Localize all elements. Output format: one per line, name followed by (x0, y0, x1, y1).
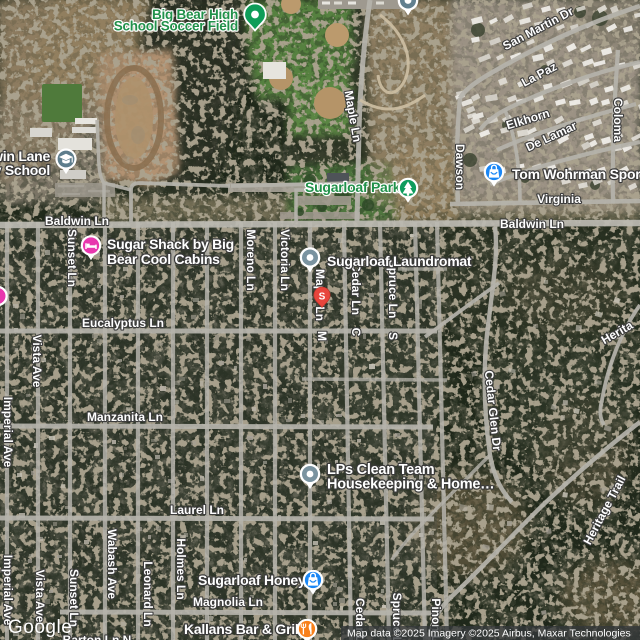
svg-text:Imperial Ave: Imperial Ave (1, 555, 15, 626)
svg-text:Sunset Ln: Sunset Ln (65, 229, 79, 287)
svg-text:Sugar Shack by Big: Sugar Shack by Big (107, 236, 234, 252)
svg-text:Leonard Ln: Leonard Ln (141, 561, 155, 626)
svg-text:Google: Google (8, 617, 72, 638)
svg-text:Imperial Ave: Imperial Ave (1, 397, 15, 468)
svg-text:Housekeeping & Home…: Housekeeping & Home… (327, 477, 494, 493)
svg-text:Holmes Ln: Holmes Ln (174, 538, 188, 599)
svg-text:S: S (319, 292, 326, 303)
svg-text:Baldwin Ln: Baldwin Ln (45, 214, 109, 228)
svg-text:Sugarloaf Park: Sugarloaf Park (305, 179, 401, 195)
svg-text:Laurel Ln: Laurel Ln (170, 503, 224, 517)
svg-text:Coloma: Coloma (611, 98, 625, 142)
svg-text:Sugarloaf Honey: Sugarloaf Honey (198, 572, 306, 588)
svg-text:Manzanita Ln: Manzanita Ln (87, 410, 163, 424)
svg-text:Vista Ave: Vista Ave (33, 570, 47, 623)
svg-text:S: S (386, 332, 400, 340)
svg-text:Kallans Bar & Grill: Kallans Bar & Grill (184, 621, 302, 637)
svg-text:M: M (315, 331, 329, 341)
svg-text:Magnolia Ln: Magnolia Ln (193, 595, 263, 609)
svg-text:Baldwin Ln: Baldwin Ln (500, 217, 564, 231)
svg-text:Map data ©2025 Imagery ©2025 A: Map data ©2025 Imagery ©2025 Airbus, Max… (347, 628, 631, 640)
svg-text:Tom Wohrman Sports: Tom Wohrman Sports (512, 166, 640, 182)
svg-text:Dawson: Dawson (453, 144, 467, 190)
svg-text:Barton Ln N: Barton Ln N (63, 633, 132, 640)
svg-text:Virginia: Virginia (537, 192, 581, 206)
svg-text:y School: y School (0, 162, 50, 178)
svg-text:Bear Cool Cabins: Bear Cool Cabins (107, 251, 220, 267)
svg-text:Eucalyptus Ln: Eucalyptus Ln (82, 316, 164, 330)
svg-text:Wabash Ave: Wabash Ave (105, 529, 119, 599)
svg-text:School Soccer Field: School Soccer Field (114, 19, 238, 34)
svg-text:Vista Ave: Vista Ave (30, 335, 44, 388)
svg-text:Sugarloaf Laundromat: Sugarloaf Laundromat (327, 253, 472, 269)
svg-text:C: C (349, 328, 363, 337)
svg-text:Moreno Ln: Moreno Ln (244, 229, 258, 290)
svg-text:Cedar Ln: Cedar Ln (349, 263, 363, 315)
svg-text:Victoria Ln: Victoria Ln (278, 229, 292, 291)
